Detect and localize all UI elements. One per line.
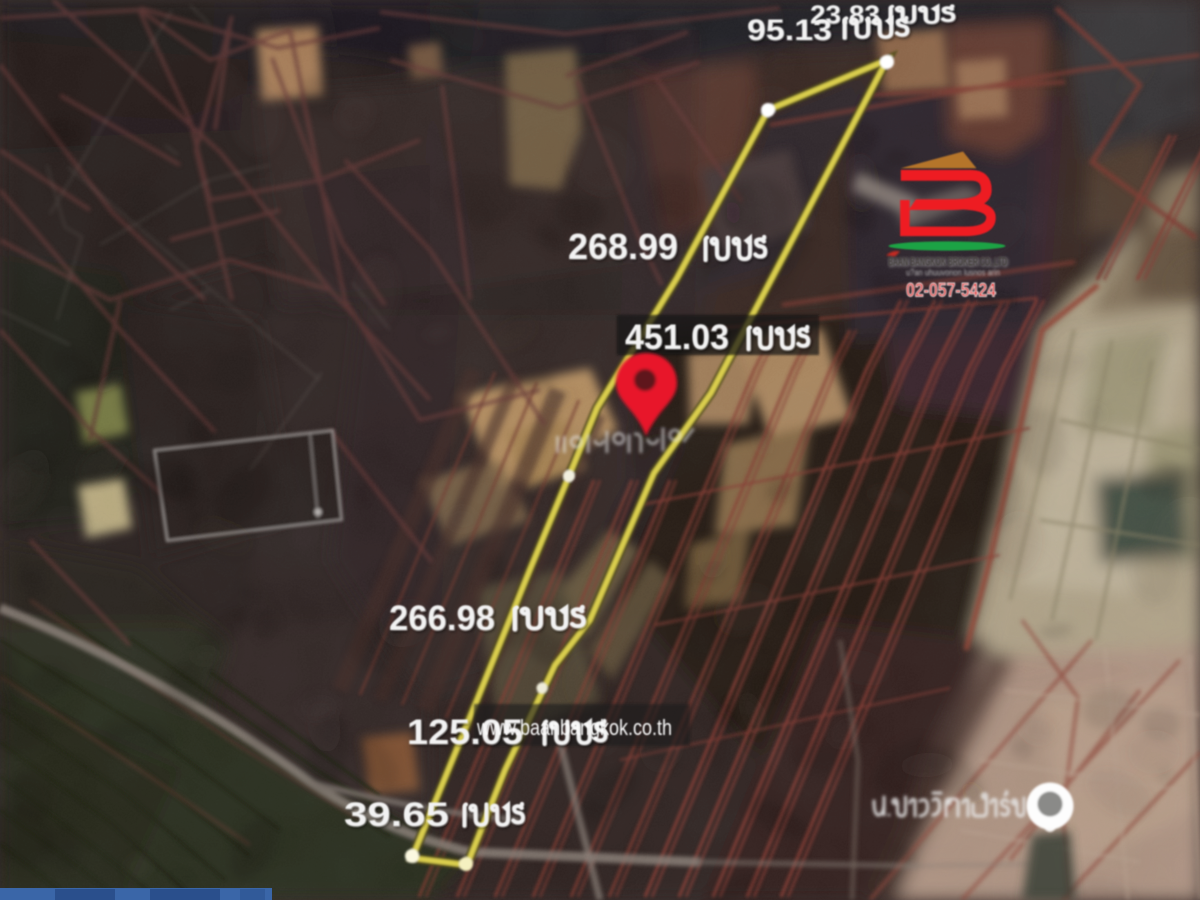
svg-text:95.13: 95.13: [747, 14, 832, 47]
svg-text:BAAN BANGKOK BROKER CO.,LTD: BAAN BANGKOK BROKER CO.,LTD: [888, 255, 1007, 269]
svg-text:451.03: 451.03: [625, 318, 729, 357]
svg-text:268.99: 268.99: [568, 226, 678, 267]
svg-text:www.baanbangkok.co.th: www.baanbangkok.co.th: [476, 715, 672, 740]
svg-text:39.65: 39.65: [344, 796, 449, 834]
svg-text:u?an uhuuvonon lusnos arin: u?an uhuuvonon lusnos arin: [906, 268, 1000, 278]
svg-text:02-057-5424: 02-057-5424: [906, 281, 996, 302]
svg-text:266.98: 266.98: [389, 599, 495, 638]
